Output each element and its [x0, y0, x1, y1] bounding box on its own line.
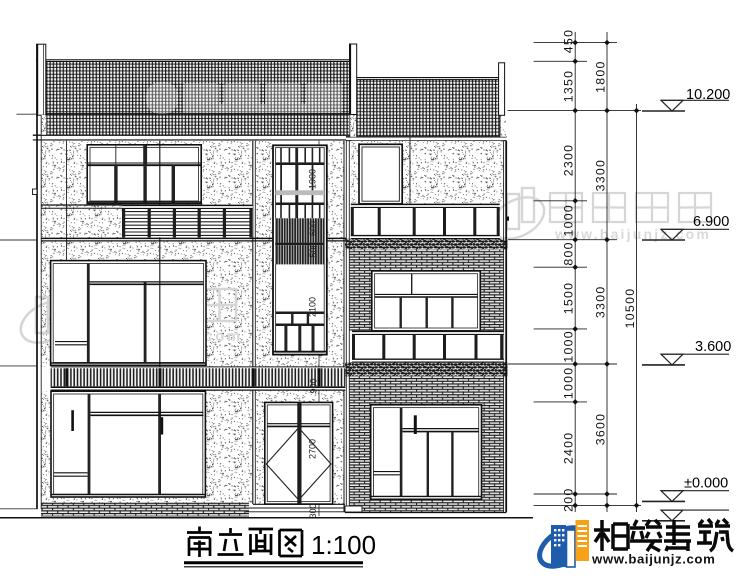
svg-text:900: 900 — [309, 378, 319, 393]
svg-text:800: 800 — [562, 241, 576, 265]
svg-text:450: 450 — [562, 29, 576, 53]
svg-text:10.200: 10.200 — [686, 87, 730, 103]
svg-text:6.900: 6.900 — [693, 214, 729, 230]
svg-text:3300: 3300 — [593, 286, 607, 319]
svg-text:±0.000: ±0.000 — [684, 476, 728, 492]
svg-text:2100: 2100 — [308, 297, 318, 317]
svg-text:1000: 1000 — [562, 367, 576, 400]
svg-text:3300: 3300 — [593, 159, 607, 192]
svg-text:10500: 10500 — [623, 288, 637, 329]
svg-text:1350: 1350 — [562, 70, 576, 103]
svg-text:2700: 2700 — [308, 439, 318, 459]
svg-text:1800: 1800 — [593, 60, 607, 93]
svg-text:300: 300 — [308, 503, 318, 518]
svg-text:200: 200 — [562, 487, 576, 511]
svg-text:1900: 1900 — [308, 169, 318, 189]
svg-text:500: 500 — [308, 242, 318, 257]
svg-text:www.baijunjz.com: www.baijunjz.com — [591, 552, 715, 567]
svg-text:3600: 3600 — [593, 413, 607, 446]
svg-text:2400: 2400 — [562, 432, 576, 465]
svg-text:3.600: 3.600 — [695, 339, 731, 355]
svg-text:600: 600 — [308, 221, 318, 236]
svg-text:1000: 1000 — [562, 330, 576, 363]
svg-text:1500: 1500 — [562, 282, 576, 315]
svg-text:1000: 1000 — [562, 204, 576, 237]
svg-text:1:100: 1:100 — [311, 530, 376, 560]
svg-text:2300: 2300 — [562, 144, 576, 177]
